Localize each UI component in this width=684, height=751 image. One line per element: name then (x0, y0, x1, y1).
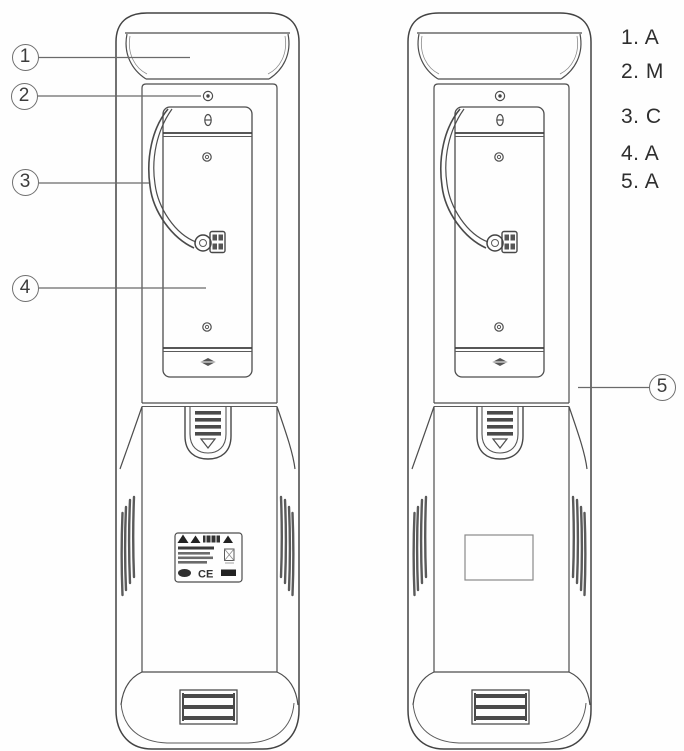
callout-5: 5 (649, 374, 676, 401)
compliance-sticker: CE (175, 533, 242, 582)
legend-item-4: 4. A (621, 142, 659, 166)
legend-item-2: 2. M (621, 60, 664, 84)
callout-3: 3 (12, 169, 39, 196)
ce-mark: CE (198, 569, 213, 581)
legend-item-1: 1. A (621, 26, 659, 50)
device-left: CE (116, 13, 299, 749)
blank-label (465, 535, 533, 580)
callout-1: 1 (12, 44, 39, 71)
callout-4: 4 (12, 275, 39, 302)
device-right (408, 13, 591, 749)
weee-icon (225, 549, 235, 563)
legend-item-3: 3. C (621, 105, 662, 129)
legend-item-5: 5. A (621, 170, 659, 194)
diagram-art: CE (0, 0, 684, 751)
callout-2: 2 (11, 83, 38, 110)
callout-lines (37, 58, 649, 388)
figure-canvas: CE 1 2 3 4 5 1. A 2. M 3. C 4. A 5. A (0, 0, 684, 751)
brand-logo-mark (178, 569, 191, 577)
